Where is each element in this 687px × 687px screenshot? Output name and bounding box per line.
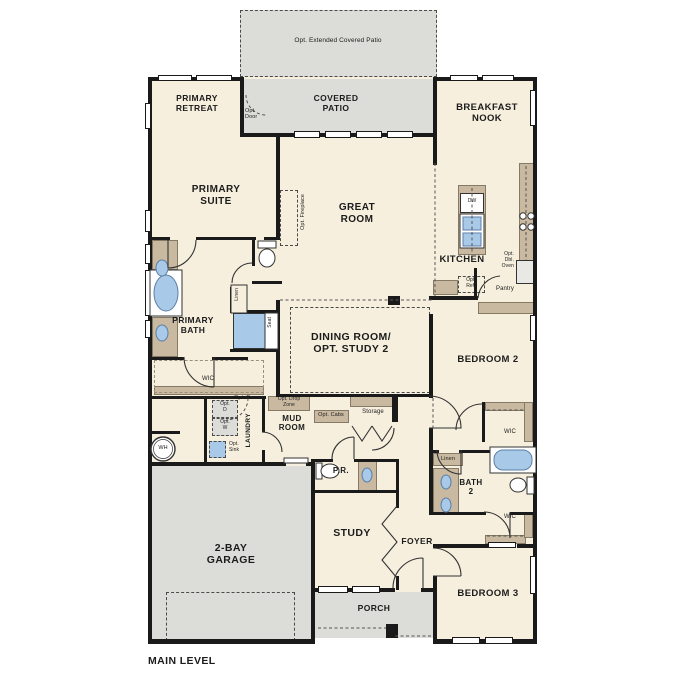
wall <box>148 462 286 466</box>
wall <box>262 450 265 462</box>
dining-room-label: DINING ROOM/ OPT. STUDY 2 <box>311 331 391 356</box>
window <box>196 75 232 81</box>
wall <box>230 287 233 311</box>
opt-washer-label: Opt. W <box>220 420 230 432</box>
laundry-opt-door-label: Opt. Door <box>234 395 259 401</box>
wall <box>311 490 399 493</box>
wall <box>230 349 280 352</box>
storage-label: Storage <box>362 409 384 416</box>
wall <box>354 459 399 462</box>
plan-detail <box>233 313 269 349</box>
patio-opt-door-label: Opt. Door <box>245 108 257 121</box>
powder-room-label: P.R. <box>333 466 349 475</box>
opt-cabs-label: Opt. Cabs <box>318 412 344 418</box>
cabinet <box>485 402 526 411</box>
wall <box>204 399 207 462</box>
cabinet <box>433 468 459 515</box>
wall <box>429 296 478 300</box>
wall <box>429 428 433 450</box>
porch-area <box>315 592 433 638</box>
opt-drop-zone-label: Opt. Drop Zone <box>278 397 301 409</box>
study-label: STUDY <box>333 527 371 539</box>
primary-suite-label: PRIMARY SUITE <box>192 184 241 208</box>
window <box>352 586 380 593</box>
wall <box>240 77 244 137</box>
bedroom2-wic-label: WIC <box>504 429 516 436</box>
primary-bath-label: PRIMARY BATH <box>172 315 214 335</box>
window <box>450 75 478 81</box>
water-heater-label: WH <box>158 445 167 451</box>
wall <box>196 237 256 240</box>
opt-sink-label: Opt. Sink <box>229 442 239 454</box>
plan-detail <box>209 441 226 458</box>
window <box>145 103 151 129</box>
opt-refrigerator-label: Opt. Ref. <box>466 278 476 290</box>
foyer-label: FOYER <box>401 536 432 546</box>
bath-2-label: BATH 2 <box>459 478 482 497</box>
opt-dryer-label: Opt. D <box>220 402 230 414</box>
dishwasher-label: DW <box>468 199 477 205</box>
cabinet <box>350 396 396 407</box>
plan-detail <box>166 592 295 641</box>
cabinet <box>519 163 534 263</box>
cabinet <box>433 280 458 295</box>
cabinet <box>358 461 377 491</box>
kitchen-label: KITCHEN <box>439 254 484 265</box>
window <box>452 637 480 644</box>
window <box>318 586 348 593</box>
bedroom3-wic-label: WIC <box>504 514 516 521</box>
window <box>145 270 151 316</box>
wall <box>459 450 491 453</box>
wall <box>212 357 248 360</box>
covered-patio-label: COVERED PATIO <box>314 93 359 113</box>
wall <box>396 576 399 590</box>
porch-bottom-mask <box>315 638 433 647</box>
wall <box>276 137 280 237</box>
window <box>530 556 536 594</box>
window <box>325 131 351 138</box>
breakfast-nook-label: BREAKFAST NOOK <box>456 102 518 124</box>
wall <box>433 77 437 137</box>
primary-retreat-label: PRIMARY RETREAT <box>176 93 218 113</box>
wall <box>433 133 437 165</box>
primary-wic-label: WIC <box>202 376 214 383</box>
wall <box>392 396 398 422</box>
wall <box>517 544 537 548</box>
window <box>158 75 192 81</box>
wall <box>396 493 399 508</box>
window <box>356 131 382 138</box>
wall <box>252 240 255 266</box>
wall <box>429 314 433 398</box>
window <box>530 315 536 341</box>
bedroom-2-label: BEDROOM 2 <box>457 354 518 365</box>
opt-double-oven-label: Opt. Dbl. Oven <box>490 252 514 270</box>
window <box>145 210 151 232</box>
laundry-label: LAUNDRY <box>245 413 253 447</box>
cabinet <box>524 512 533 538</box>
wall <box>148 357 184 360</box>
window <box>387 131 413 138</box>
wall <box>264 237 280 240</box>
linen-2-label: Linen <box>441 456 455 462</box>
cabinet <box>152 240 178 270</box>
window <box>294 131 320 138</box>
pantry-label: Pantry <box>496 286 514 293</box>
main-level-title: MAIN LEVEL <box>148 655 216 667</box>
wall <box>429 512 486 515</box>
wall <box>262 399 265 432</box>
bedroom-3-label: BEDROOM 3 <box>457 588 518 599</box>
wall <box>311 459 333 462</box>
mud-room-label: MUD ROOM <box>279 414 306 433</box>
cabinet <box>524 402 533 442</box>
shower-seat-label: Seat <box>268 317 274 328</box>
window <box>530 90 536 126</box>
wall <box>396 459 399 495</box>
window <box>145 320 151 338</box>
cabinet <box>478 302 534 314</box>
wall <box>429 448 433 514</box>
window <box>145 244 151 264</box>
wall <box>433 576 437 642</box>
wall <box>148 639 315 644</box>
wall <box>429 450 439 453</box>
window <box>482 75 514 81</box>
wall <box>482 402 485 442</box>
wall <box>276 300 280 396</box>
wall <box>252 281 282 284</box>
great-room-label: GREAT ROOM <box>339 202 375 226</box>
porch-label: PORCH <box>358 603 391 613</box>
primary-linen-label: Linen <box>235 288 241 301</box>
plan-detail <box>280 190 298 246</box>
wall <box>433 544 491 548</box>
wall <box>152 237 170 240</box>
floor-plan: Opt. Extended Covered Patio COVERED PATI… <box>0 0 687 687</box>
window <box>488 542 516 548</box>
wall <box>230 310 280 313</box>
wall <box>148 466 152 644</box>
opt-fireplace-label: Opt. Fireplace <box>300 194 306 230</box>
wall <box>148 431 180 434</box>
window <box>485 637 513 644</box>
extended-patio-label: Opt. Extended Covered Patio <box>294 37 381 45</box>
garage-label: 2-BAY GARAGE <box>207 542 256 567</box>
